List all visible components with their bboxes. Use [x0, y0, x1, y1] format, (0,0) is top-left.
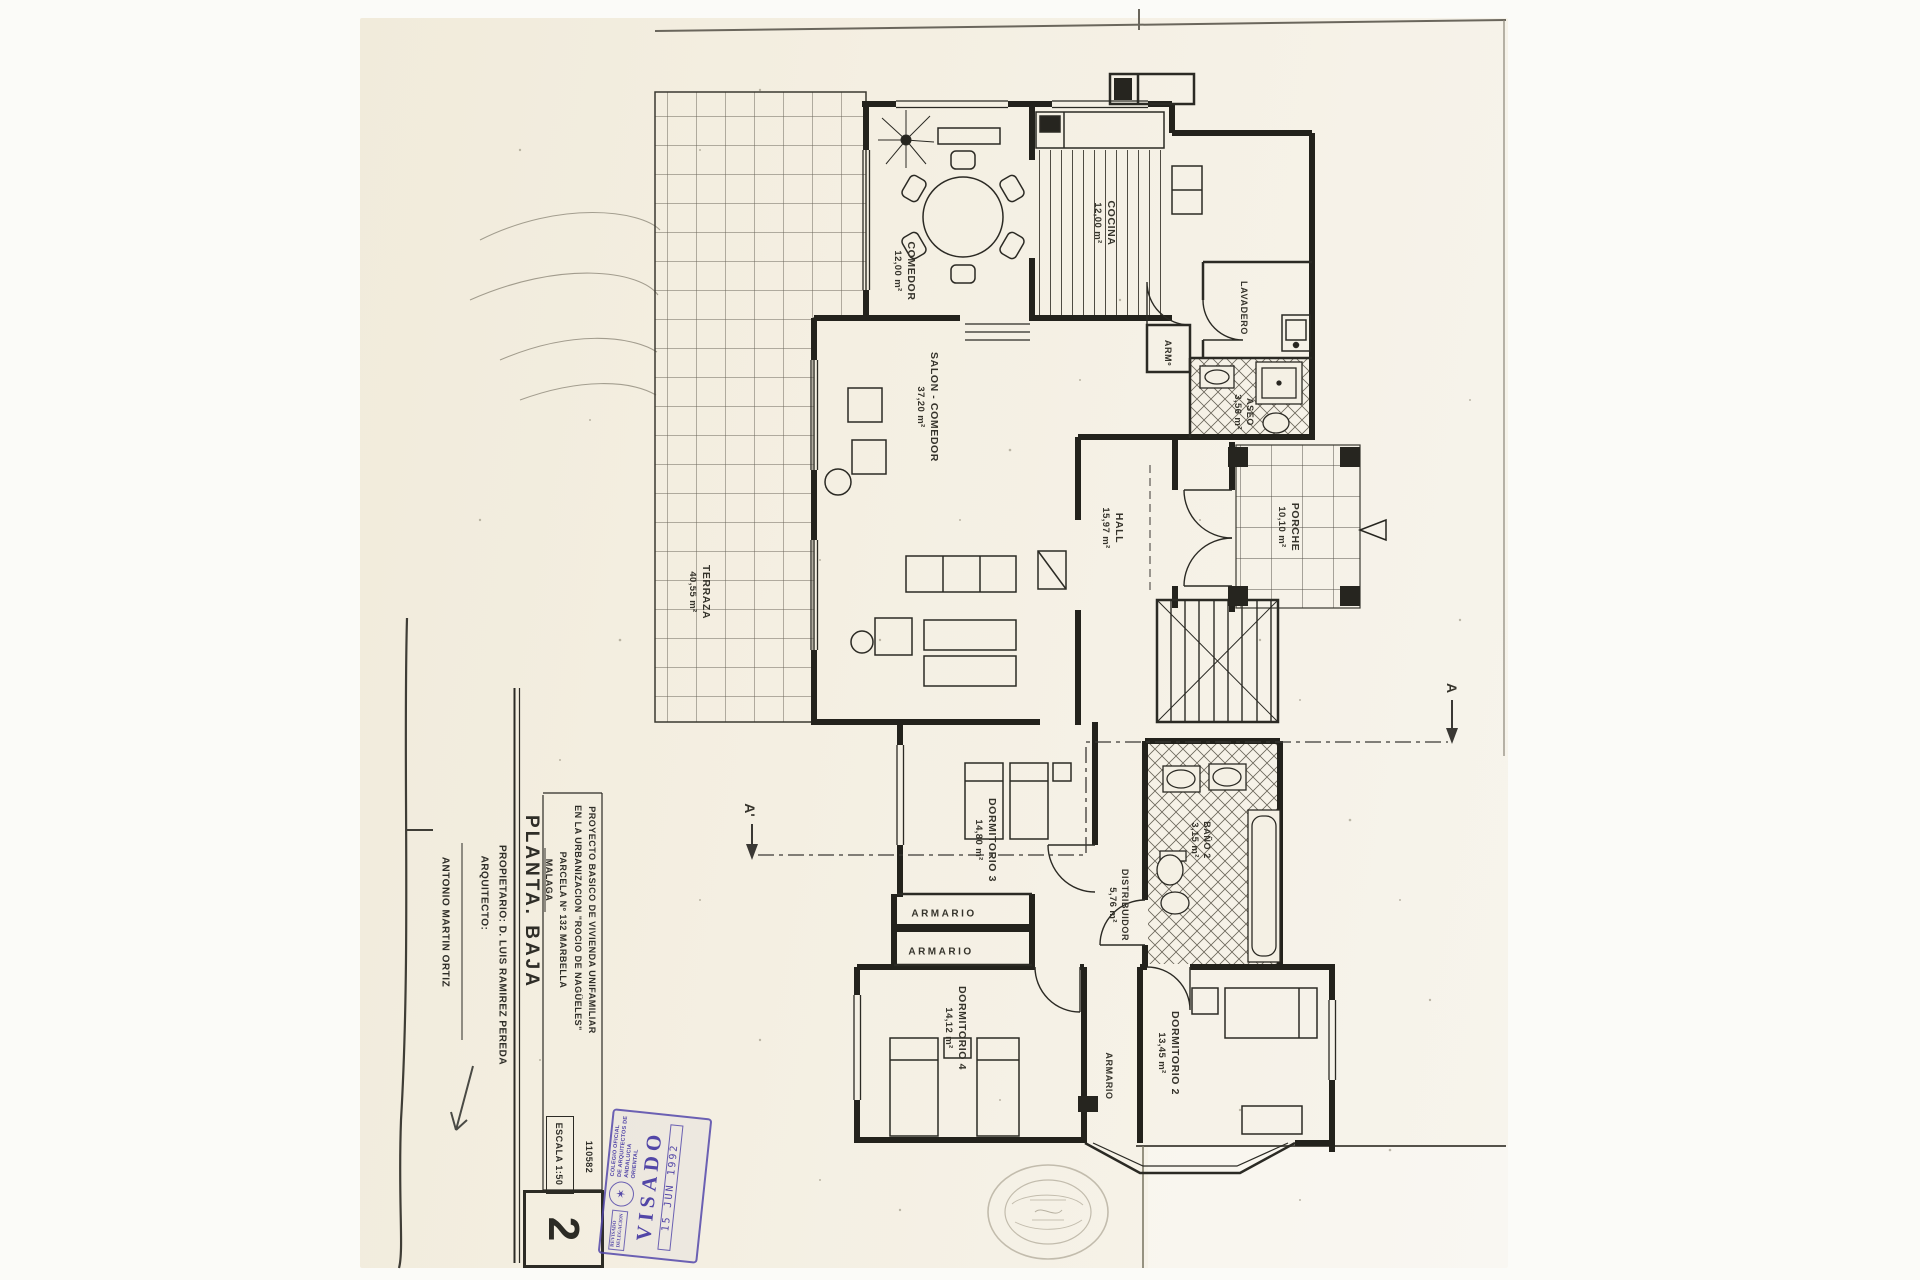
project-title-line-1: PROYECTO BASICO DE VIVIENDA UNIFAMILIAR [587, 806, 597, 1034]
room-label-salon-comedor: SALON - COMEDOR37,20 m² [914, 352, 940, 462]
room-label-hall: HALL15,97 m² [1099, 507, 1125, 548]
dining-chairs [900, 151, 1026, 283]
room-label-porche: PORCHE10,10 m² [1275, 503, 1301, 552]
terraza-tiles [655, 92, 866, 722]
room-label-comedor: COMEDOR12,00 m² [891, 241, 917, 300]
plan-title: PLANTA. BAJA [520, 815, 542, 989]
reference-number: 110582 [584, 1141, 594, 1174]
room-label-dormitorio-2: DORMITORIO 213,45 m² [1155, 1011, 1181, 1095]
staircase [1157, 600, 1278, 722]
room-label-cocina: COCINA12,00 m² [1091, 200, 1117, 245]
entrance-arrow [1360, 520, 1386, 540]
garden-contour-sketch [470, 213, 660, 401]
room-label-lavadero: LAVADERO [1237, 281, 1249, 335]
plant-icon [878, 110, 934, 168]
section-mark-a: A [1443, 683, 1461, 693]
project-title-line-4: MALAGA [544, 859, 554, 902]
project-title-line-2: EN LA URBANIZACION "ROCIO DE NAGÜELES" [573, 805, 583, 1031]
architect-name: ANTONIO MARTIN ORTIZ [440, 857, 451, 987]
closet-pier [1078, 1096, 1098, 1112]
chimney-flue [1114, 78, 1132, 100]
closet-label-armario-1: ARMARIO [911, 908, 976, 921]
sheet-number-box: 2 [523, 1190, 604, 1268]
room-label-armario-closet: ARMº [1161, 340, 1173, 366]
architect-label: ARQUITECTO: [479, 856, 490, 931]
entry-steps [965, 324, 1030, 340]
room-label-dormitorio-4: DORMITORIO 414,12 m² [942, 986, 968, 1070]
scan-artifacts [399, 9, 1506, 1268]
room-label-aseo: ASEO3,56 m² [1231, 394, 1255, 430]
owner-line: PROPIETARIO: D. LUIS RAMIREZ PEREDA [497, 845, 508, 1065]
floorplan-drawing [0, 0, 1920, 1280]
project-title-line-3: PARCELA Nº 132 MARBELLA [558, 852, 568, 989]
closet-label-armario-3: ARMARIO [1102, 1052, 1114, 1099]
scanned-floorplan-sheet: COMEDOR12,00 m² COCINA12,00 m² LAVADERO … [0, 0, 1920, 1280]
visado-stamp: REVISADO DELEGACION ✶ COLEGIO OFICIAL DE… [598, 1108, 713, 1264]
room-label-dormitorio-3: DORMITORIO 314,80 m² [972, 798, 998, 882]
stamp-revision-box: REVISADO DELEGACION [608, 1209, 628, 1251]
closet-label-armario-2: ARMARIO [908, 946, 973, 959]
room-label-bano-2: BAÑO 23,15 m² [1188, 821, 1212, 859]
embossed-seal-icon [988, 1165, 1108, 1259]
sheet-number: 2 [538, 1217, 588, 1241]
section-mark-a-prime: A' [741, 803, 759, 816]
college-emblem-icon: ✶ [608, 1180, 635, 1207]
scale-value: ESCALA 1:50 [554, 1123, 564, 1186]
room-label-distribuidor: DISTRIBUIDOR5,76 m² [1106, 869, 1130, 941]
room-label-terraza: TERRAZA40,55 m² [686, 565, 712, 619]
